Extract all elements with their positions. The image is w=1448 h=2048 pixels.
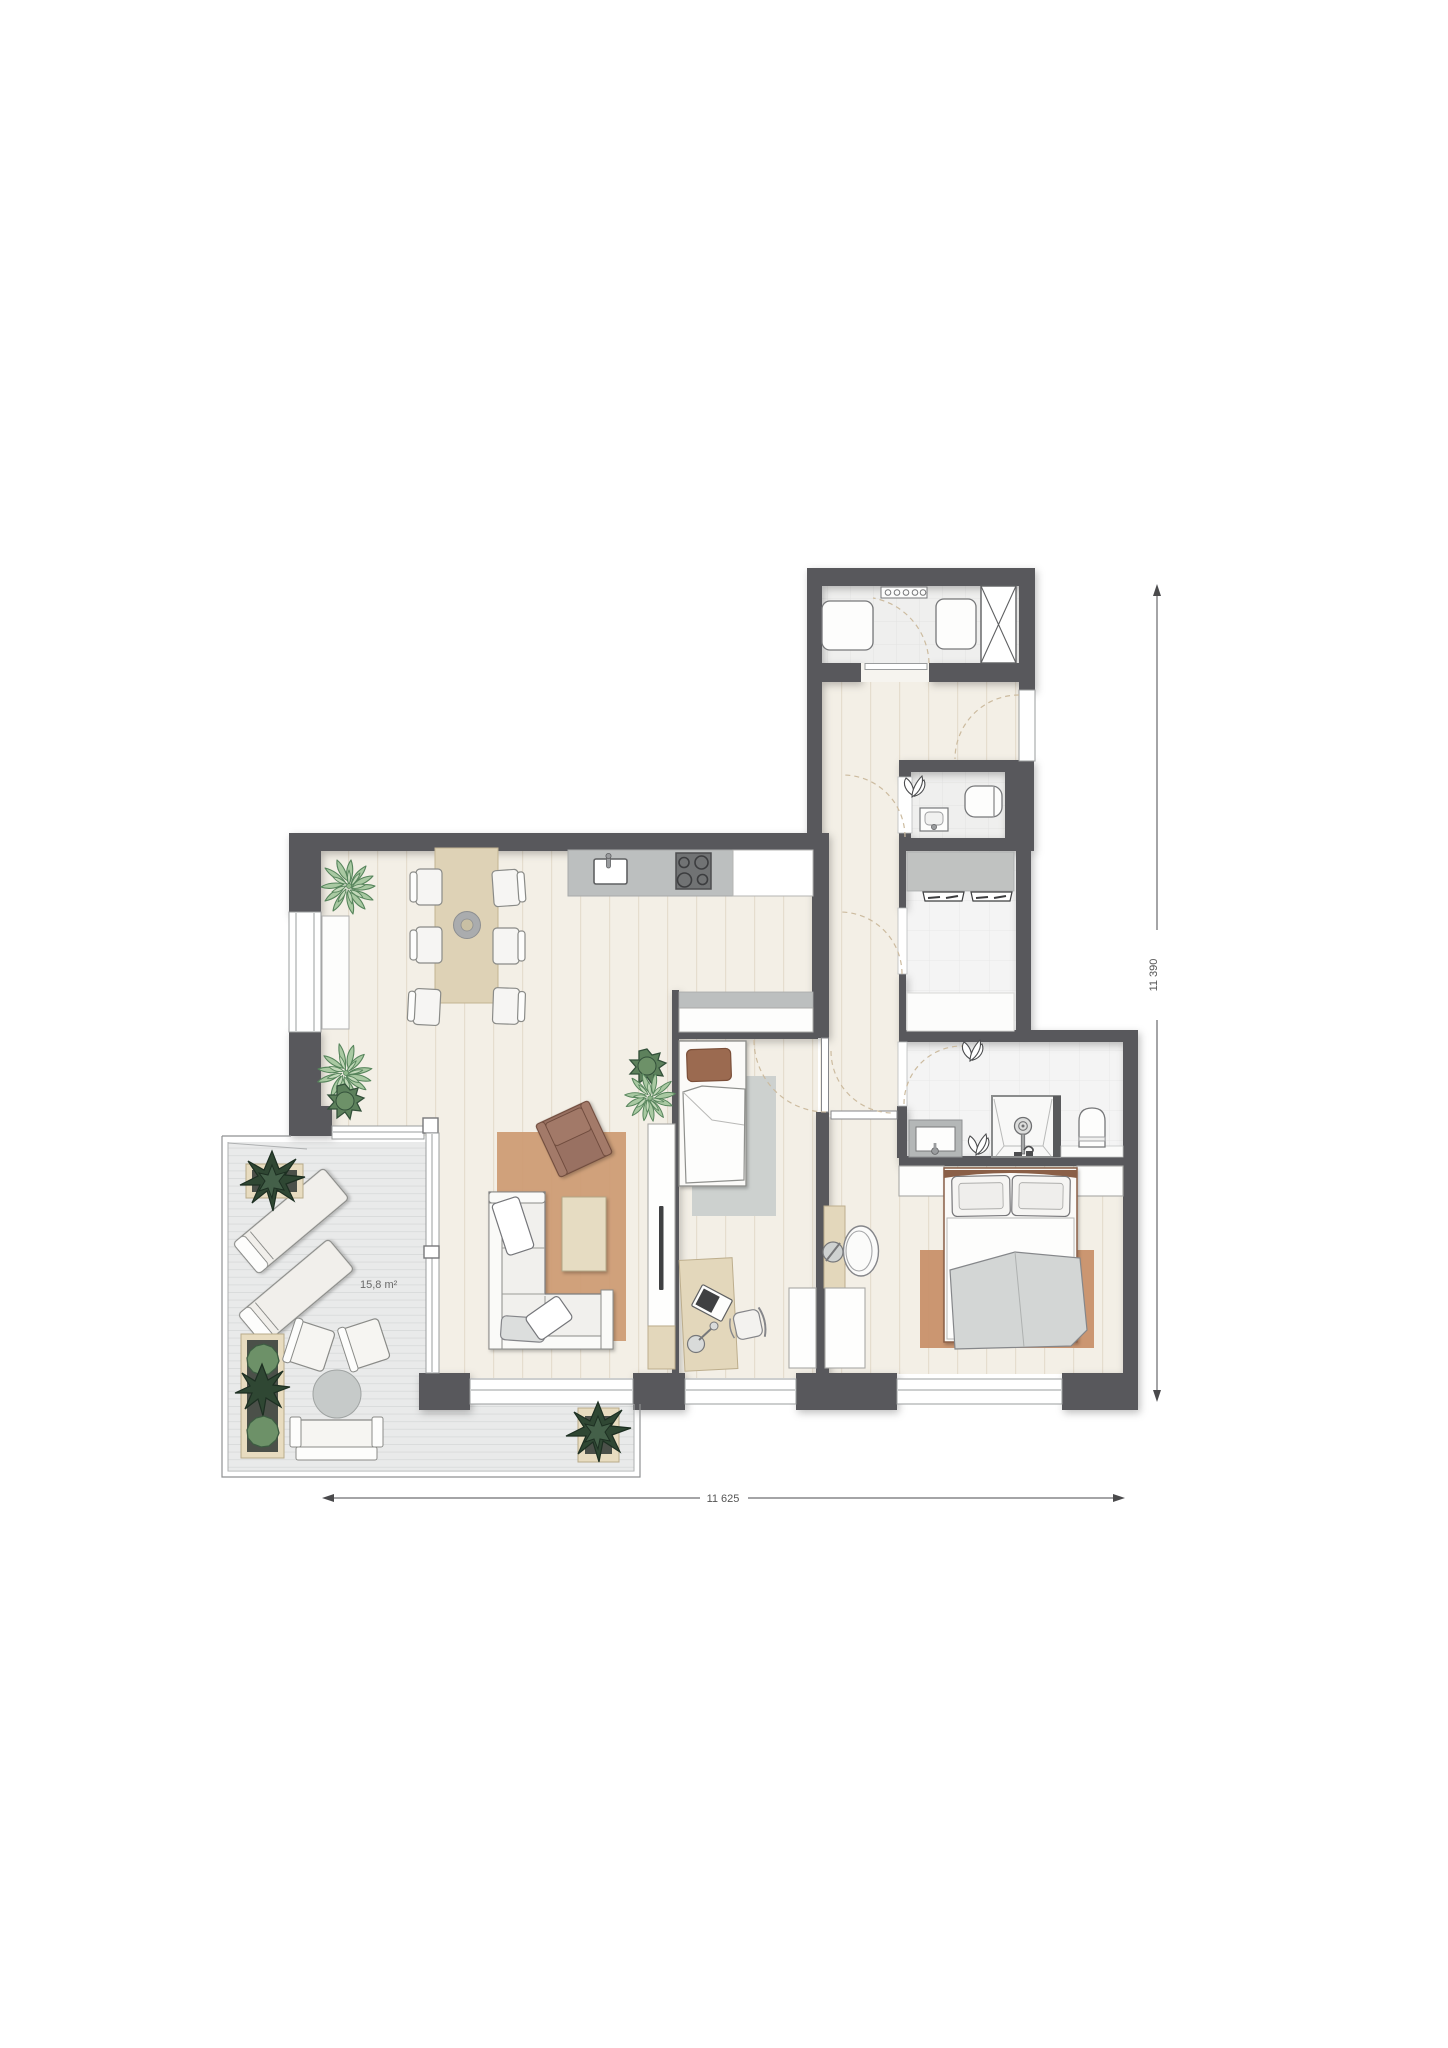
svg-text:11 390: 11 390 bbox=[1148, 959, 1160, 992]
svg-text:11 625: 11 625 bbox=[707, 1493, 740, 1505]
svg-text:15,8 m²: 15,8 m² bbox=[360, 1279, 398, 1291]
